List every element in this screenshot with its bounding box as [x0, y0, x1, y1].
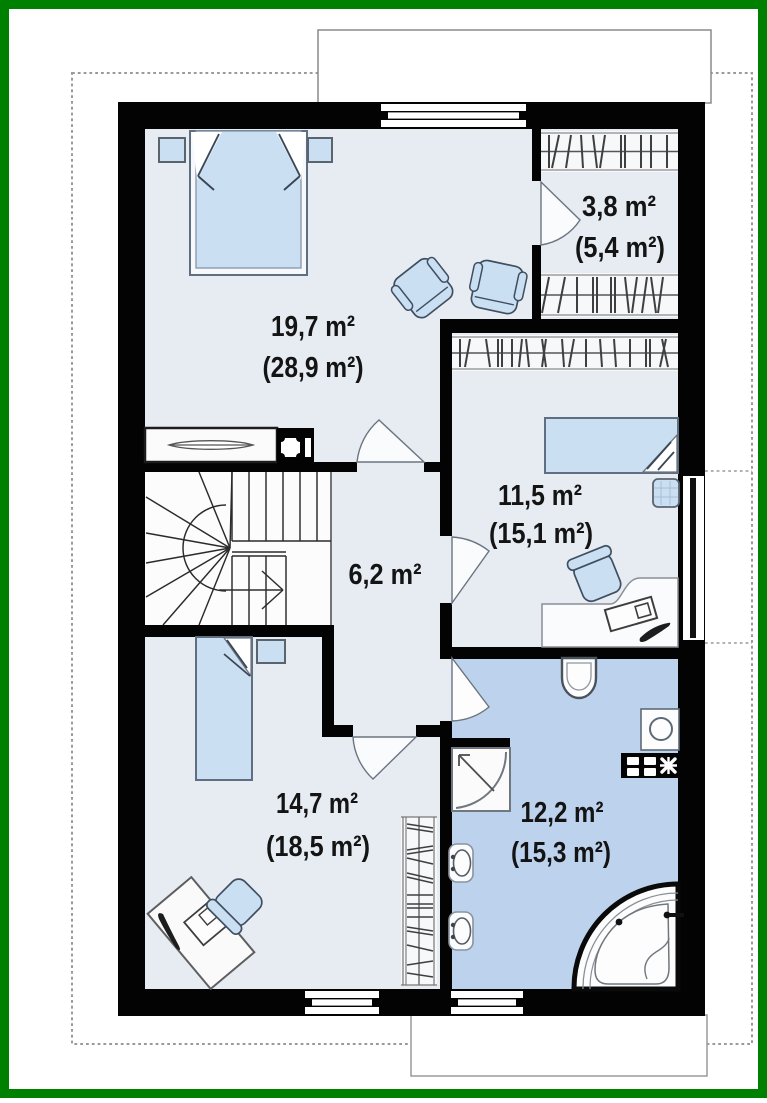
svg-text:11,5 m²: 11,5 m²	[498, 480, 582, 512]
svg-text:19,7 m²: 19,7 m²	[271, 311, 355, 343]
svg-text:(18,5 m²): (18,5 m²)	[266, 831, 370, 863]
svg-text:(15,3 m²): (15,3 m²)	[511, 837, 611, 869]
svg-text:12,2 m²: 12,2 m²	[521, 797, 604, 829]
svg-text:(28,9 m²): (28,9 m²)	[263, 352, 364, 384]
svg-text:3,8 m²: 3,8 m²	[582, 191, 656, 223]
svg-text:14,7 m²: 14,7 m²	[276, 788, 358, 820]
svg-text:(15,1 m²): (15,1 m²)	[489, 518, 593, 550]
svg-text:6,2 m²: 6,2 m²	[349, 559, 422, 591]
svg-text:(5,4 m²): (5,4 m²)	[575, 232, 665, 264]
